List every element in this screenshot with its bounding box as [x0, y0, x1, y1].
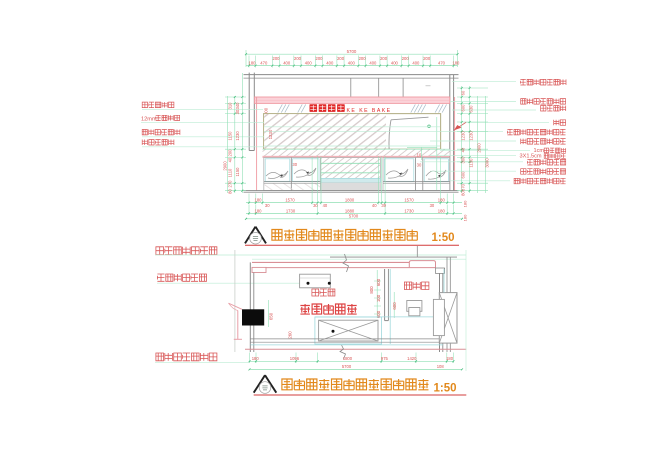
svg-text:1110: 1110 [228, 168, 233, 177]
svg-text:1800: 1800 [345, 198, 355, 203]
svg-text:400: 400 [326, 60, 334, 65]
svg-text:400: 400 [391, 60, 399, 65]
svg-text:180: 180 [463, 200, 468, 207]
svg-text:400: 400 [412, 60, 420, 65]
svg-text:1730: 1730 [404, 208, 414, 213]
svg-text:400: 400 [283, 60, 291, 65]
svg-text:40: 40 [461, 147, 466, 152]
svg-text:180: 180 [255, 198, 263, 203]
svg-text:1230: 1230 [468, 131, 473, 141]
svg-text:40: 40 [323, 203, 328, 208]
svg-text:1150: 1150 [228, 131, 233, 141]
svg-text:200: 200 [423, 56, 431, 61]
svg-text:100: 100 [376, 294, 381, 302]
svg-text:1800: 1800 [343, 356, 353, 361]
svg-text:650: 650 [269, 312, 274, 320]
svg-text:1230: 1230 [461, 131, 466, 141]
svg-text:3000: 3000 [484, 158, 489, 168]
svg-text:400: 400 [369, 60, 377, 65]
svg-text:670: 670 [461, 183, 466, 191]
svg-text:200: 200 [316, 56, 324, 61]
svg-text:1:50: 1:50 [432, 232, 455, 244]
svg-text:600: 600 [376, 278, 381, 286]
svg-text:108: 108 [437, 364, 445, 369]
svg-text:310: 310 [228, 102, 233, 110]
svg-text:180: 180 [438, 208, 446, 213]
svg-text:1730: 1730 [286, 208, 296, 213]
svg-text:630: 630 [468, 105, 473, 113]
svg-text:180: 180 [438, 198, 446, 203]
svg-text:1096: 1096 [290, 356, 300, 361]
svg-text:200: 200 [402, 56, 410, 61]
svg-text:30: 30 [417, 162, 422, 167]
svg-text:1:50: 1:50 [434, 383, 457, 395]
svg-text:975: 975 [381, 356, 389, 361]
svg-text:600: 600 [392, 302, 397, 310]
svg-text:60: 60 [461, 90, 466, 95]
svg-text:80: 80 [228, 189, 233, 194]
svg-text:300: 300 [461, 156, 466, 164]
svg-text:5700: 5700 [342, 364, 352, 369]
svg-text:30: 30 [265, 203, 270, 208]
svg-text:30: 30 [292, 162, 297, 167]
svg-text:30: 30 [235, 109, 240, 114]
svg-text:470: 470 [260, 60, 268, 65]
svg-text:200: 200 [380, 56, 388, 61]
svg-text:600: 600 [461, 104, 466, 112]
svg-text:180: 180 [252, 356, 260, 361]
svg-text:1420: 1420 [407, 356, 417, 361]
svg-text:40: 40 [372, 203, 377, 208]
svg-text:1230: 1230 [268, 129, 273, 139]
svg-text:200: 200 [294, 56, 302, 61]
svg-text:1570: 1570 [404, 198, 414, 203]
svg-text:5700: 5700 [347, 49, 357, 54]
svg-text:200: 200 [228, 149, 233, 157]
svg-text:400: 400 [348, 60, 356, 65]
svg-text:40: 40 [228, 157, 233, 162]
svg-text:180: 180 [446, 356, 454, 361]
svg-text:30: 30 [430, 203, 435, 208]
svg-text:470: 470 [438, 60, 446, 65]
svg-text:30: 30 [381, 203, 386, 208]
svg-text:800: 800 [369, 286, 374, 294]
svg-text:1230: 1230 [235, 131, 240, 141]
svg-text:80: 80 [461, 191, 466, 196]
svg-text:400: 400 [305, 60, 313, 65]
svg-text:180: 180 [452, 60, 460, 65]
svg-text:180: 180 [255, 208, 263, 213]
svg-text:2900: 2900 [476, 143, 481, 153]
svg-text:1570: 1570 [285, 198, 295, 203]
svg-text:270: 270 [228, 180, 233, 188]
svg-text:340: 340 [235, 102, 240, 110]
svg-text:1150: 1150 [235, 167, 240, 177]
svg-text:1150: 1150 [468, 158, 473, 168]
svg-text:180: 180 [463, 214, 468, 221]
svg-text:5700: 5700 [349, 213, 359, 218]
svg-text:12mm: 12mm [141, 116, 157, 122]
svg-text:3X1.5cm: 3X1.5cm [520, 154, 542, 160]
svg-text:200: 200 [273, 56, 281, 61]
svg-text:200: 200 [359, 56, 367, 61]
svg-text:260: 260 [288, 331, 293, 339]
svg-text:600: 600 [461, 171, 466, 179]
svg-text:180: 180 [249, 60, 257, 65]
svg-text:200: 200 [337, 56, 345, 61]
